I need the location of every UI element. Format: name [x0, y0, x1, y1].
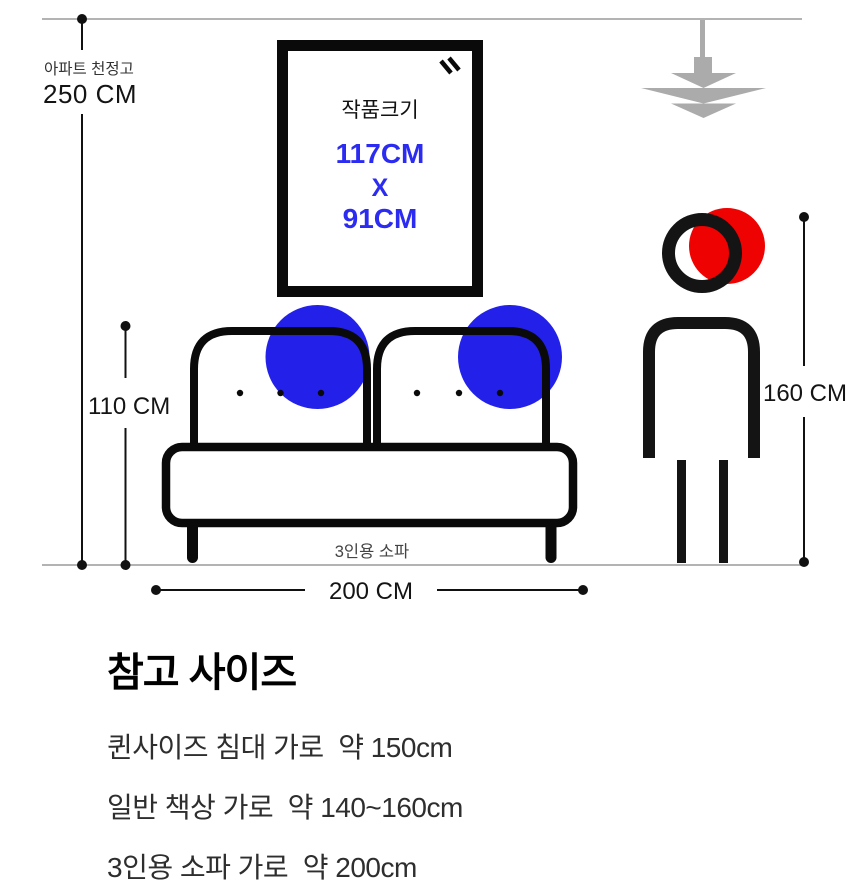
lamp-shade-bottom [671, 104, 736, 119]
room-size-diagram: 아파트 천정고 250 CM 작품크기 117CM X 91CM [0, 0, 860, 620]
measure-dot [77, 14, 87, 24]
ceiling-label: 아파트 천정고 [44, 60, 134, 78]
measure-dot [77, 560, 87, 570]
reference-sizes-section: 참고 사이즈 퀸사이즈 침대 가로 약 150cm 일반 책상 가로 약 140… [107, 640, 747, 881]
lamp-socket [694, 57, 712, 74]
sofa-base [166, 447, 573, 523]
size-guide-infographic: 아파트 천정고 250 CM 작품크기 117CM X 91CM [0, 0, 860, 881]
measure-dot [121, 560, 131, 570]
pendant-lamp-icon [641, 20, 766, 118]
measure-dot [578, 585, 588, 595]
sofa-height-label: 110 CM [88, 393, 170, 420]
measure-dot [799, 212, 809, 222]
ceiling-height-label: 250 CM [43, 79, 137, 109]
lamp-shade-top [671, 73, 736, 88]
measure-dot [799, 557, 809, 567]
artwork-title: 작품크기 [341, 99, 418, 122]
lamp-shade-middle [641, 88, 766, 104]
measure-dot [151, 585, 161, 595]
reference-item-desk: 일반 책상 가로 약 140~160cm [107, 786, 747, 826]
sofa-width-label: 200 CM [329, 578, 413, 605]
person-torso [649, 323, 754, 458]
artwork-height: 91CM [343, 203, 418, 234]
person-height-label: 160 CM [763, 380, 847, 407]
sofa-label: 3인용 소파 [335, 542, 409, 561]
reference-heading: 참고 사이즈 [107, 640, 747, 698]
artwork-width: 117CM [336, 138, 425, 169]
sofa-height-measure: 110 CM [88, 321, 170, 570]
reference-item-sofa: 3인용 소파 가로 약 200cm [107, 846, 747, 881]
ceiling-height-measure: 아파트 천정고 250 CM [43, 14, 137, 570]
person-illustration [649, 208, 765, 563]
person-height-measure: 160 CM [763, 212, 847, 567]
artwork-frame: 작품크기 117CM X 91CM [283, 46, 478, 292]
sofa-width-measure: 200 CM [151, 578, 588, 605]
reference-item-bed: 퀸사이즈 침대 가로 약 150cm [107, 726, 747, 766]
artwork-times: X [372, 174, 389, 202]
sofa-illustration: 3인용 소파 [166, 305, 573, 561]
measure-dot [121, 321, 131, 331]
lamp-cord [700, 20, 705, 59]
